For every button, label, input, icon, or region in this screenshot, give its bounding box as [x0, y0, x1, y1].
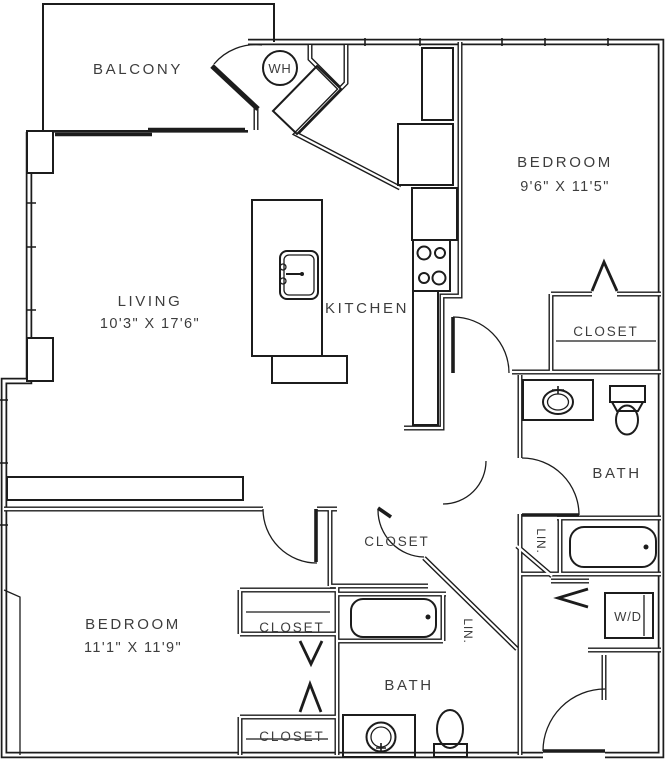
entry-door-arc — [543, 689, 605, 751]
linen1-label: LIN. — [534, 528, 548, 553]
kitchen-fixtures — [252, 48, 457, 425]
kitchen-island-base — [272, 356, 347, 383]
bathtub — [570, 527, 656, 567]
angled-wall — [212, 66, 258, 109]
floorplan-page: BALCONY WH BEDROOM 9'6" X 11'5" LIVING 1… — [0, 0, 671, 768]
sink-inner — [548, 394, 569, 410]
bedroom2-closet-a-label: CLOSET — [259, 620, 324, 635]
bifold-laundry — [558, 589, 588, 607]
hall-closet-label: CLOSET — [364, 534, 429, 549]
linen2-label: LIN. — [461, 618, 475, 643]
bifold-closet-a — [300, 641, 322, 664]
burner — [435, 248, 445, 258]
bedroom2-label: BEDROOM — [85, 616, 181, 633]
wall-pilaster — [27, 338, 53, 381]
faucet-tip — [300, 272, 304, 276]
corridor-door-arc — [443, 461, 486, 504]
bedroom2-door-arc — [263, 509, 317, 563]
living-label: LIVING — [118, 293, 183, 310]
toilet-bowl — [437, 710, 463, 748]
tub-drain — [644, 545, 649, 550]
counter-lower — [413, 291, 438, 425]
tub-drain — [426, 615, 431, 620]
window-seat — [7, 477, 243, 500]
bath1-label: BATH — [592, 465, 641, 482]
water-heater-label: WH — [268, 61, 291, 76]
mechanical-platform — [273, 66, 341, 134]
kitchen-label: KITCHEN — [325, 300, 409, 317]
living-dimensions: 10'3" X 17'6" — [100, 316, 200, 332]
burner — [418, 247, 431, 260]
toilet-bowl — [616, 406, 638, 435]
burner — [433, 272, 446, 285]
floorplan-svg: BALCONY WH BEDROOM 9'6" X 11'5" LIVING 1… — [0, 0, 671, 768]
window-ticks — [0, 38, 608, 525]
bedroom1-label: BEDROOM — [517, 154, 613, 171]
balcony-label: BALCONY — [93, 61, 183, 78]
stove — [413, 240, 450, 291]
bedroom1-closet-label: CLOSET — [573, 324, 638, 339]
wall-pilaster — [27, 131, 53, 173]
bedroom1-dimensions: 9'6" X 11'5" — [520, 179, 610, 195]
kitchen-island — [252, 200, 322, 356]
bedroom2-dimensions: 11'1" X 11'9" — [84, 640, 182, 656]
pantry-cabinet — [422, 48, 453, 120]
bathtub — [351, 599, 436, 637]
bath2-label: BATH — [384, 677, 433, 694]
bedroom2-closet-b-label: CLOSET — [259, 729, 324, 744]
refrigerator — [398, 124, 453, 185]
bath1-door-arc — [522, 458, 579, 515]
hall-closet-door-leaf — [378, 508, 391, 517]
bifold-closet-b — [300, 684, 321, 712]
counter — [412, 188, 457, 240]
faucet-icon — [552, 386, 564, 394]
closet-shelf-lines — [4, 132, 656, 755]
water-heater-closet — [212, 45, 341, 134]
bifold-closet1 — [592, 262, 617, 291]
washer-dryer-label: W/D — [614, 609, 642, 624]
door-swing-arc — [214, 45, 262, 64]
burner — [419, 273, 429, 283]
toilet-tank — [610, 386, 645, 402]
hall-door-arc — [453, 317, 509, 373]
